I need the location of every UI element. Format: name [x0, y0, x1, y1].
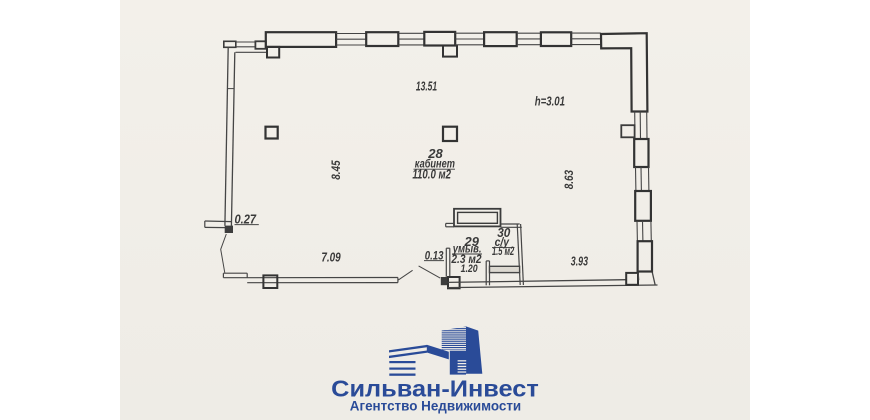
- svg-text:8.63: 8.63: [562, 170, 576, 189]
- svg-text:3.93: 3.93: [571, 255, 588, 269]
- svg-text:7.09: 7.09: [321, 250, 340, 264]
- svg-text:110.0 м2: 110.0 м2: [412, 166, 451, 181]
- svg-text:1.20: 1.20: [461, 263, 479, 275]
- svg-text:13.51: 13.51: [416, 79, 437, 94]
- svg-text:h=3.01: h=3.01: [535, 93, 565, 108]
- svg-text:8.45: 8.45: [329, 160, 343, 179]
- svg-text:1.5 м2: 1.5 м2: [492, 246, 515, 258]
- svg-text:Агентство Недвижимости: Агентство Недвижимости: [350, 397, 521, 413]
